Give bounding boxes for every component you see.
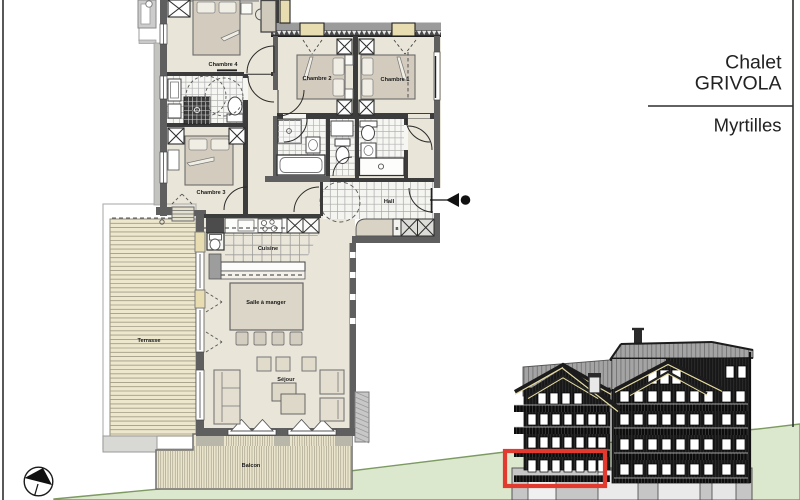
svg-text:Hall: Hall [384,199,395,205]
svg-text:Chambre 2: Chambre 2 [303,76,332,82]
svg-text:Chambre 3: Chambre 3 [197,190,226,196]
svg-text:Salle à manger: Salle à manger [246,300,286,306]
svg-text:Séjour: Séjour [277,377,295,383]
svg-text:GRIVOLA: GRIVOLA [695,73,782,95]
svg-text:Balcon: Balcon [242,463,261,469]
svg-text:Chambre 1: Chambre 1 [381,77,410,83]
svg-text:Terrasse: Terrasse [138,338,161,344]
svg-text:Chambre 4: Chambre 4 [209,62,239,68]
svg-text:Cuisine: Cuisine [258,246,278,252]
svg-text:Chalet: Chalet [725,52,782,74]
svg-text:Myrtilles: Myrtilles [714,115,782,136]
svg-text:B: B [395,226,398,231]
